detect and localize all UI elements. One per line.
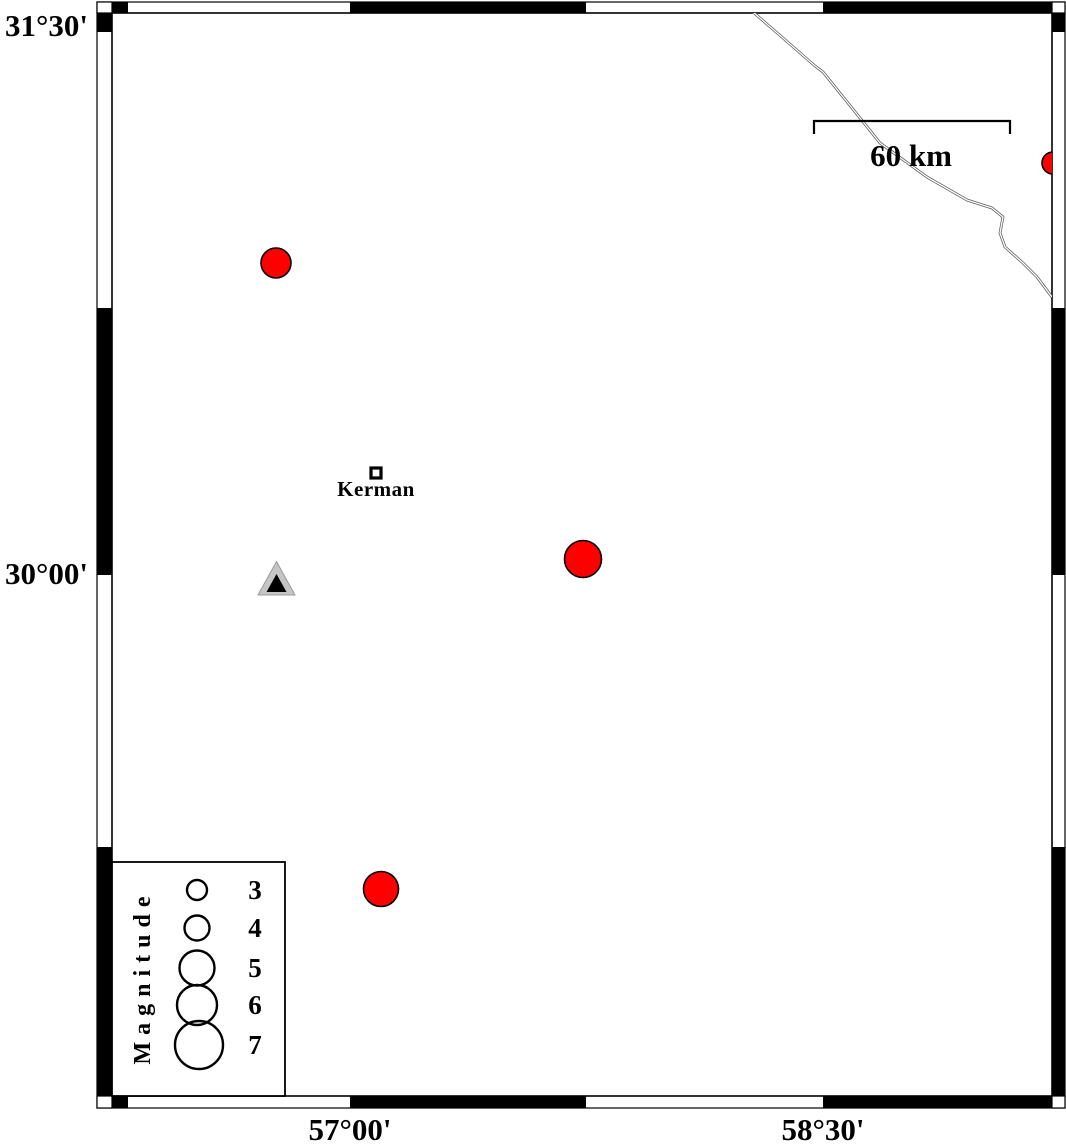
legend-title: Magnitude [131, 867, 161, 1087]
legend-label-5: 5 [230, 955, 280, 982]
lat-label-30-00: 30°00' [0, 558, 88, 589]
earthquake-marker [1042, 152, 1064, 174]
earthquake-marker [261, 248, 291, 278]
earthquake-marker [565, 541, 602, 578]
lon-label-58-30: 58°30' [733, 1114, 913, 1145]
legend-label-4: 4 [230, 915, 280, 942]
legend-label-6: 6 [230, 992, 280, 1019]
earthquake-markers [261, 152, 1064, 907]
legend-label-7: 7 [230, 1032, 280, 1059]
legend-label-3: 3 [230, 877, 280, 904]
city-label: Kerman [301, 479, 451, 500]
earthquake-marker [364, 872, 399, 907]
lat-label-31-30: 31°30' [0, 10, 88, 41]
lon-label-57-00: 57°00' [260, 1114, 440, 1145]
station-triangle-marker [258, 562, 295, 596]
scale-bar [814, 121, 1010, 134]
scale-bar-label: 60 km [841, 140, 981, 171]
seismicity-map: 31°30' 30°00' 57°00' 58°30' 60 km Kerman… [0, 0, 1066, 1146]
